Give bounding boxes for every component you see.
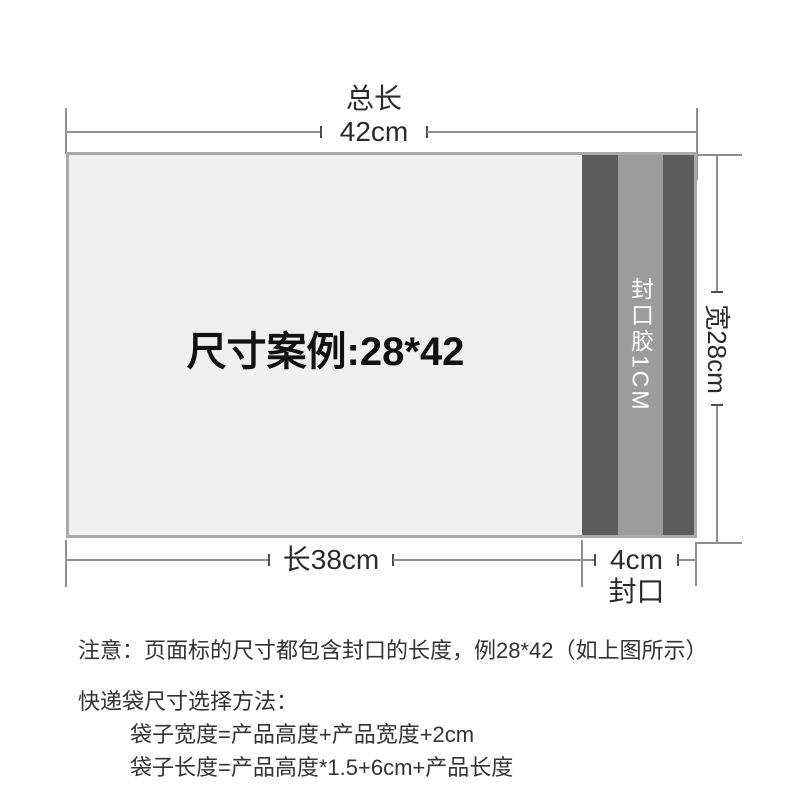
length-formula: 袋子长度=产品高度*1.5+6cm+产品长度 xyxy=(130,754,513,781)
seal-length-line-right xyxy=(678,559,696,561)
notice-text: 注意：页面标的尺寸都包含封口的长度，例28*42（如上图所示） xyxy=(78,637,708,664)
width-dimension-bottom-tick xyxy=(697,542,742,544)
bag-outline: 尺寸案例:28*42 封口胶1CM xyxy=(66,152,697,538)
body-length-label: 长38cm xyxy=(272,545,390,575)
top-extension-line-left xyxy=(65,108,67,154)
seal-length-extension-right xyxy=(695,542,697,586)
seal-length-label: 4cm xyxy=(595,545,678,575)
top-dimension-line-right xyxy=(427,131,697,133)
body-length-extension-left xyxy=(65,540,67,587)
width-dimension-label: 宽28cm xyxy=(702,289,732,409)
seal-label: 封口 xyxy=(595,577,678,607)
total-length-label: 总长 xyxy=(299,84,449,114)
seal-band-dark-left xyxy=(582,155,618,535)
body-length-extension-right xyxy=(581,540,583,587)
width-dimension-top-tick xyxy=(697,154,742,156)
width-formula: 袋子宽度=产品高度+产品宽度+2cm xyxy=(130,721,474,748)
bag-size-example-text: 尺寸案例:28*42 xyxy=(69,327,582,377)
total-length-value: 42cm xyxy=(326,117,422,147)
width-dimension-line-lower xyxy=(716,406,718,543)
body-length-line-right xyxy=(393,559,582,561)
seal-tape-label: 封口胶1CM xyxy=(624,277,658,413)
method-title: 快递袋尺寸选择方法： xyxy=(78,688,298,715)
seal-tape-strip: 封口胶1CM xyxy=(618,155,663,535)
body-length-tick-left xyxy=(268,554,270,566)
top-dimension-tick-left xyxy=(320,126,322,138)
width-dimension-line-upper xyxy=(716,155,718,292)
body-length-line-left xyxy=(66,559,269,561)
seal-band-dark-right xyxy=(663,155,694,535)
top-dimension-line-left xyxy=(66,131,321,133)
